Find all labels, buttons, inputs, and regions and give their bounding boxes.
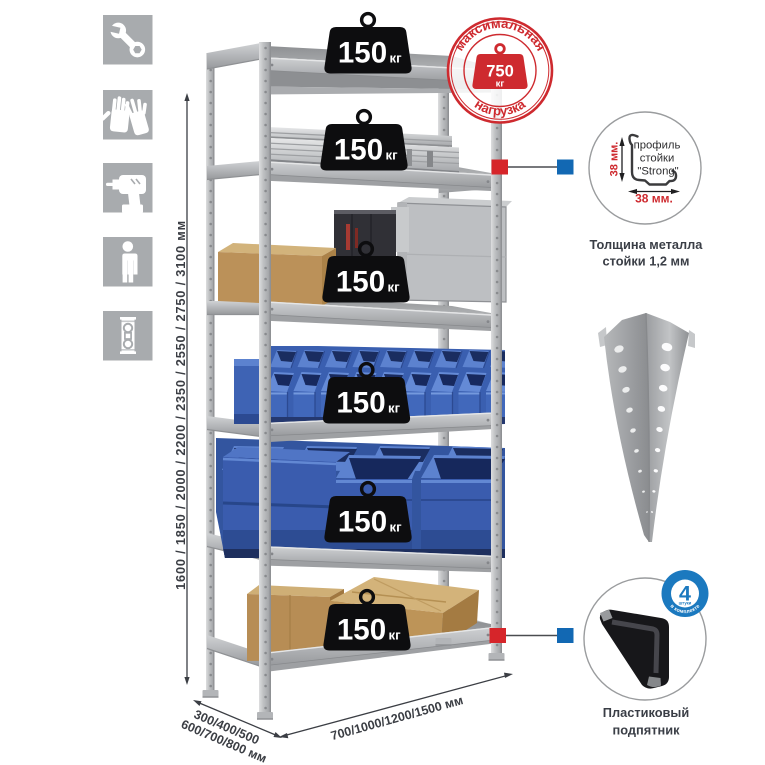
svg-text:штуки: штуки [679, 601, 692, 606]
svg-text:Пластиковый: Пластиковый [603, 705, 689, 720]
svg-text:1600 / 1850 / 2000 / 2200 / 23: 1600 / 1850 / 2000 / 2200 / 2350 / 2550 … [173, 220, 188, 590]
svg-text:кг: кг [390, 520, 403, 535]
svg-text:кг: кг [386, 148, 399, 163]
svg-text:кг: кг [388, 280, 401, 295]
svg-text:стойки: стойки [640, 153, 675, 165]
svg-text:38 мм.: 38 мм. [635, 192, 673, 206]
svg-text:150: 150 [337, 614, 386, 647]
svg-text:"Strong": "Strong" [637, 166, 678, 178]
svg-text:38 мм.: 38 мм. [609, 142, 621, 177]
svg-text:профиль: профиль [634, 140, 681, 152]
svg-text:стойки 1,2 мм: стойки 1,2 мм [602, 254, 689, 269]
svg-text:Толщина металла: Толщина металла [590, 237, 704, 252]
svg-text:кг: кг [390, 51, 403, 66]
svg-text:кг: кг [389, 628, 402, 643]
svg-text:150: 150 [334, 134, 383, 167]
svg-text:150: 150 [338, 506, 387, 539]
svg-text:кг: кг [496, 79, 505, 90]
svg-text:кг: кг [388, 401, 401, 416]
svg-text:150: 150 [338, 37, 387, 70]
svg-text:подпятник: подпятник [613, 723, 681, 738]
svg-text:150: 150 [336, 387, 385, 420]
svg-text:150: 150 [336, 266, 385, 299]
